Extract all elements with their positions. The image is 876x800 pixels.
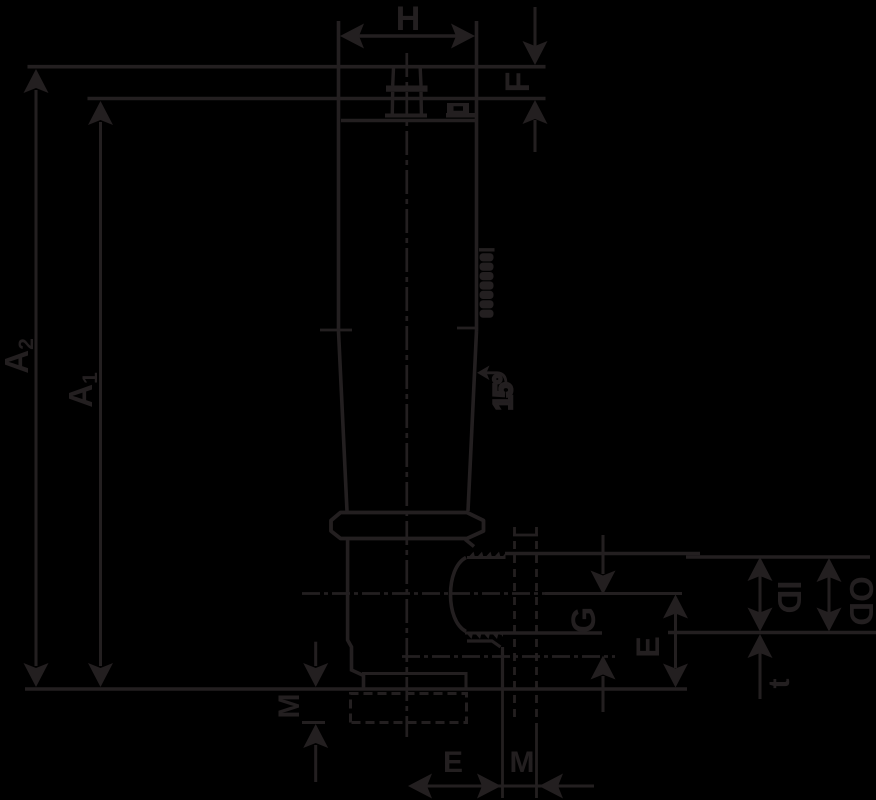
svg-text:M: M bbox=[510, 746, 535, 779]
svg-text:OD: OD bbox=[843, 576, 876, 626]
svg-text:E: E bbox=[630, 636, 666, 657]
svg-text:H: H bbox=[396, 0, 421, 38]
svg-text:E: E bbox=[443, 746, 463, 779]
svg-text:M: M bbox=[273, 694, 306, 719]
svg-text:15°: 15° bbox=[488, 374, 518, 410]
svg-text:t: t bbox=[763, 679, 796, 689]
svg-text:ID: ID bbox=[771, 581, 808, 614]
svg-text:F: F bbox=[499, 72, 537, 93]
svg-text:G: G bbox=[565, 607, 603, 633]
